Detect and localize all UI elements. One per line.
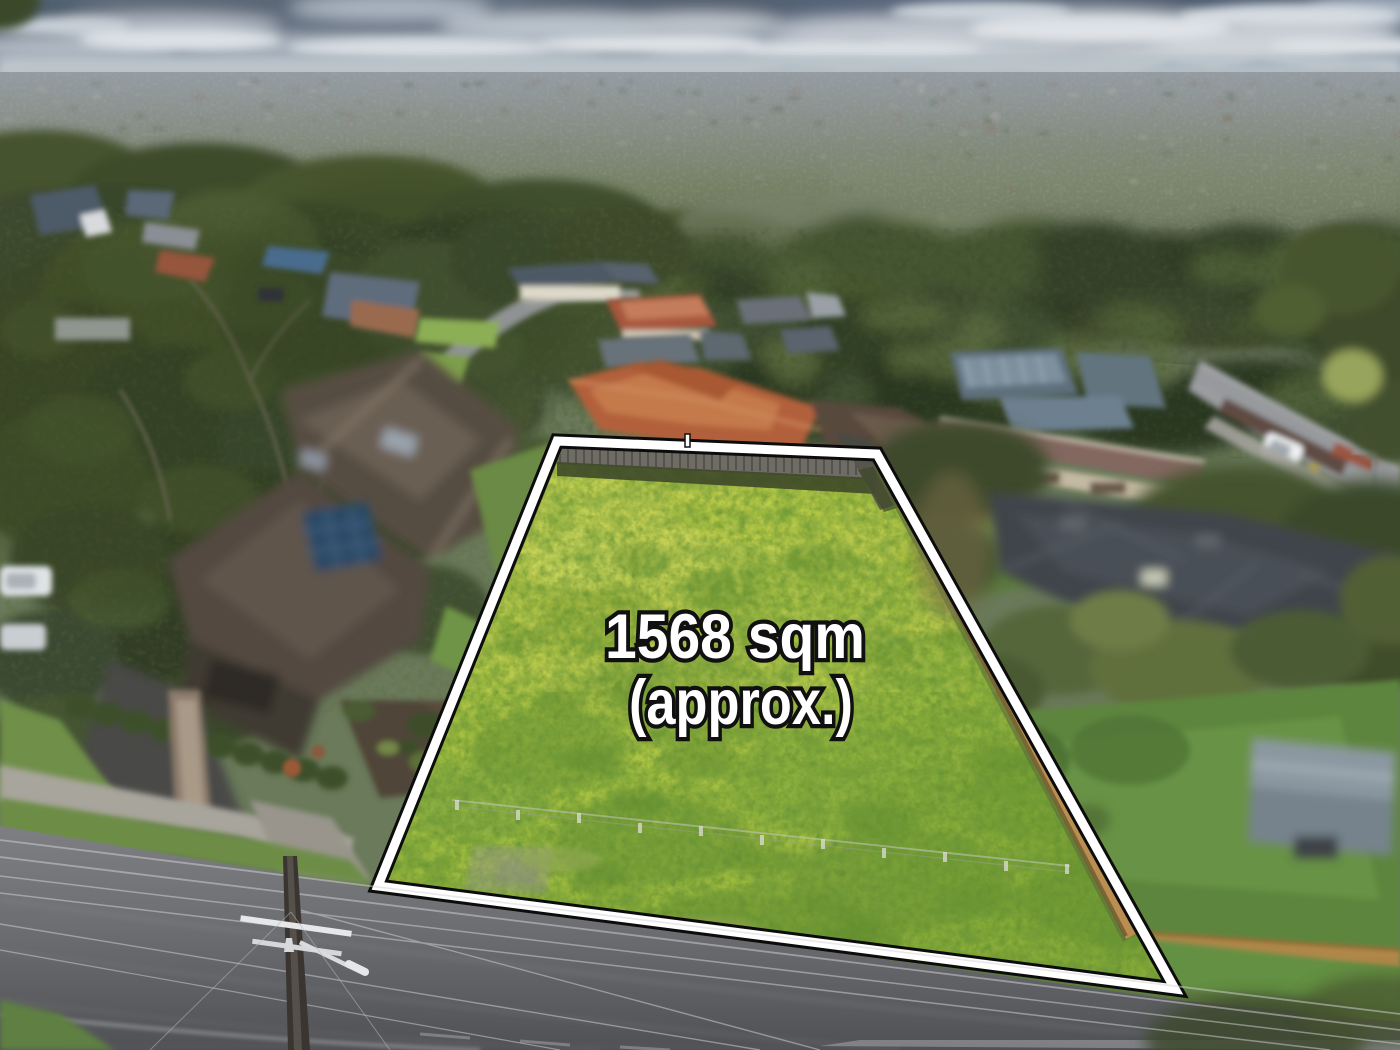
svg-text:1568 sqm: 1568 sqm: [605, 602, 865, 672]
svg-text:(approx.): (approx.): [629, 668, 853, 738]
